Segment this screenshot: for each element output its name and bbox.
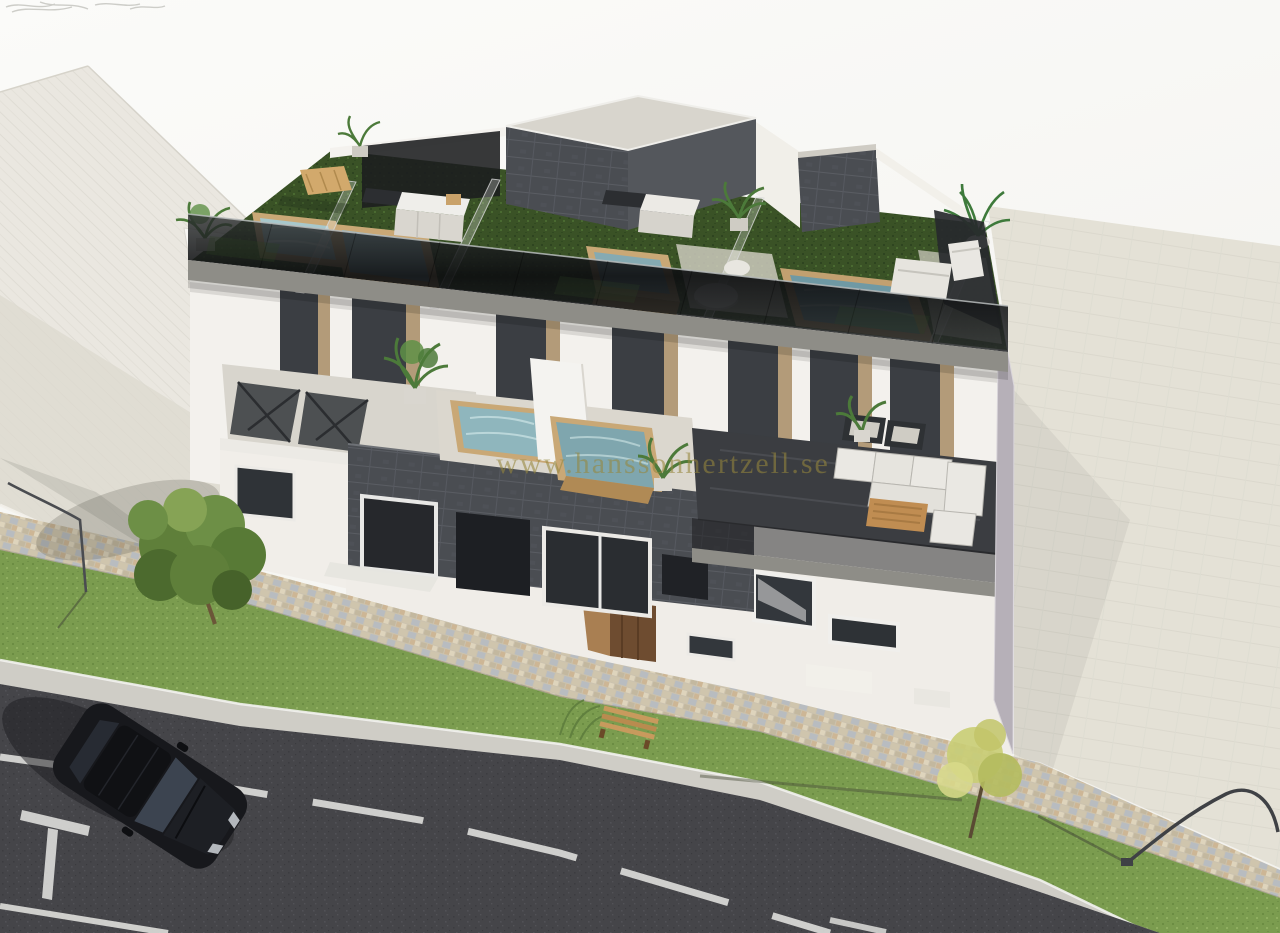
ground-window-left (236, 466, 294, 520)
sun-lounger (298, 392, 368, 452)
roof-access-bulkhead-2 (798, 144, 880, 232)
ground-window-wide (830, 616, 898, 650)
armchair (930, 510, 976, 546)
coffee-table (866, 498, 928, 532)
volume-window-large (544, 528, 650, 616)
white-lounger (948, 240, 984, 281)
sun-lounger (230, 382, 300, 442)
architectural-rendering: www.hanssonhertzell.se (0, 0, 1280, 933)
ground-window-framed (754, 572, 814, 628)
rendering-canvas: www.hanssonhertzell.se (0, 0, 1280, 933)
watermark: www.hanssonhertzell.se (496, 447, 830, 480)
ground-window-small (688, 634, 734, 660)
volume-window-dark (456, 512, 530, 596)
wooden-stool (446, 194, 461, 205)
